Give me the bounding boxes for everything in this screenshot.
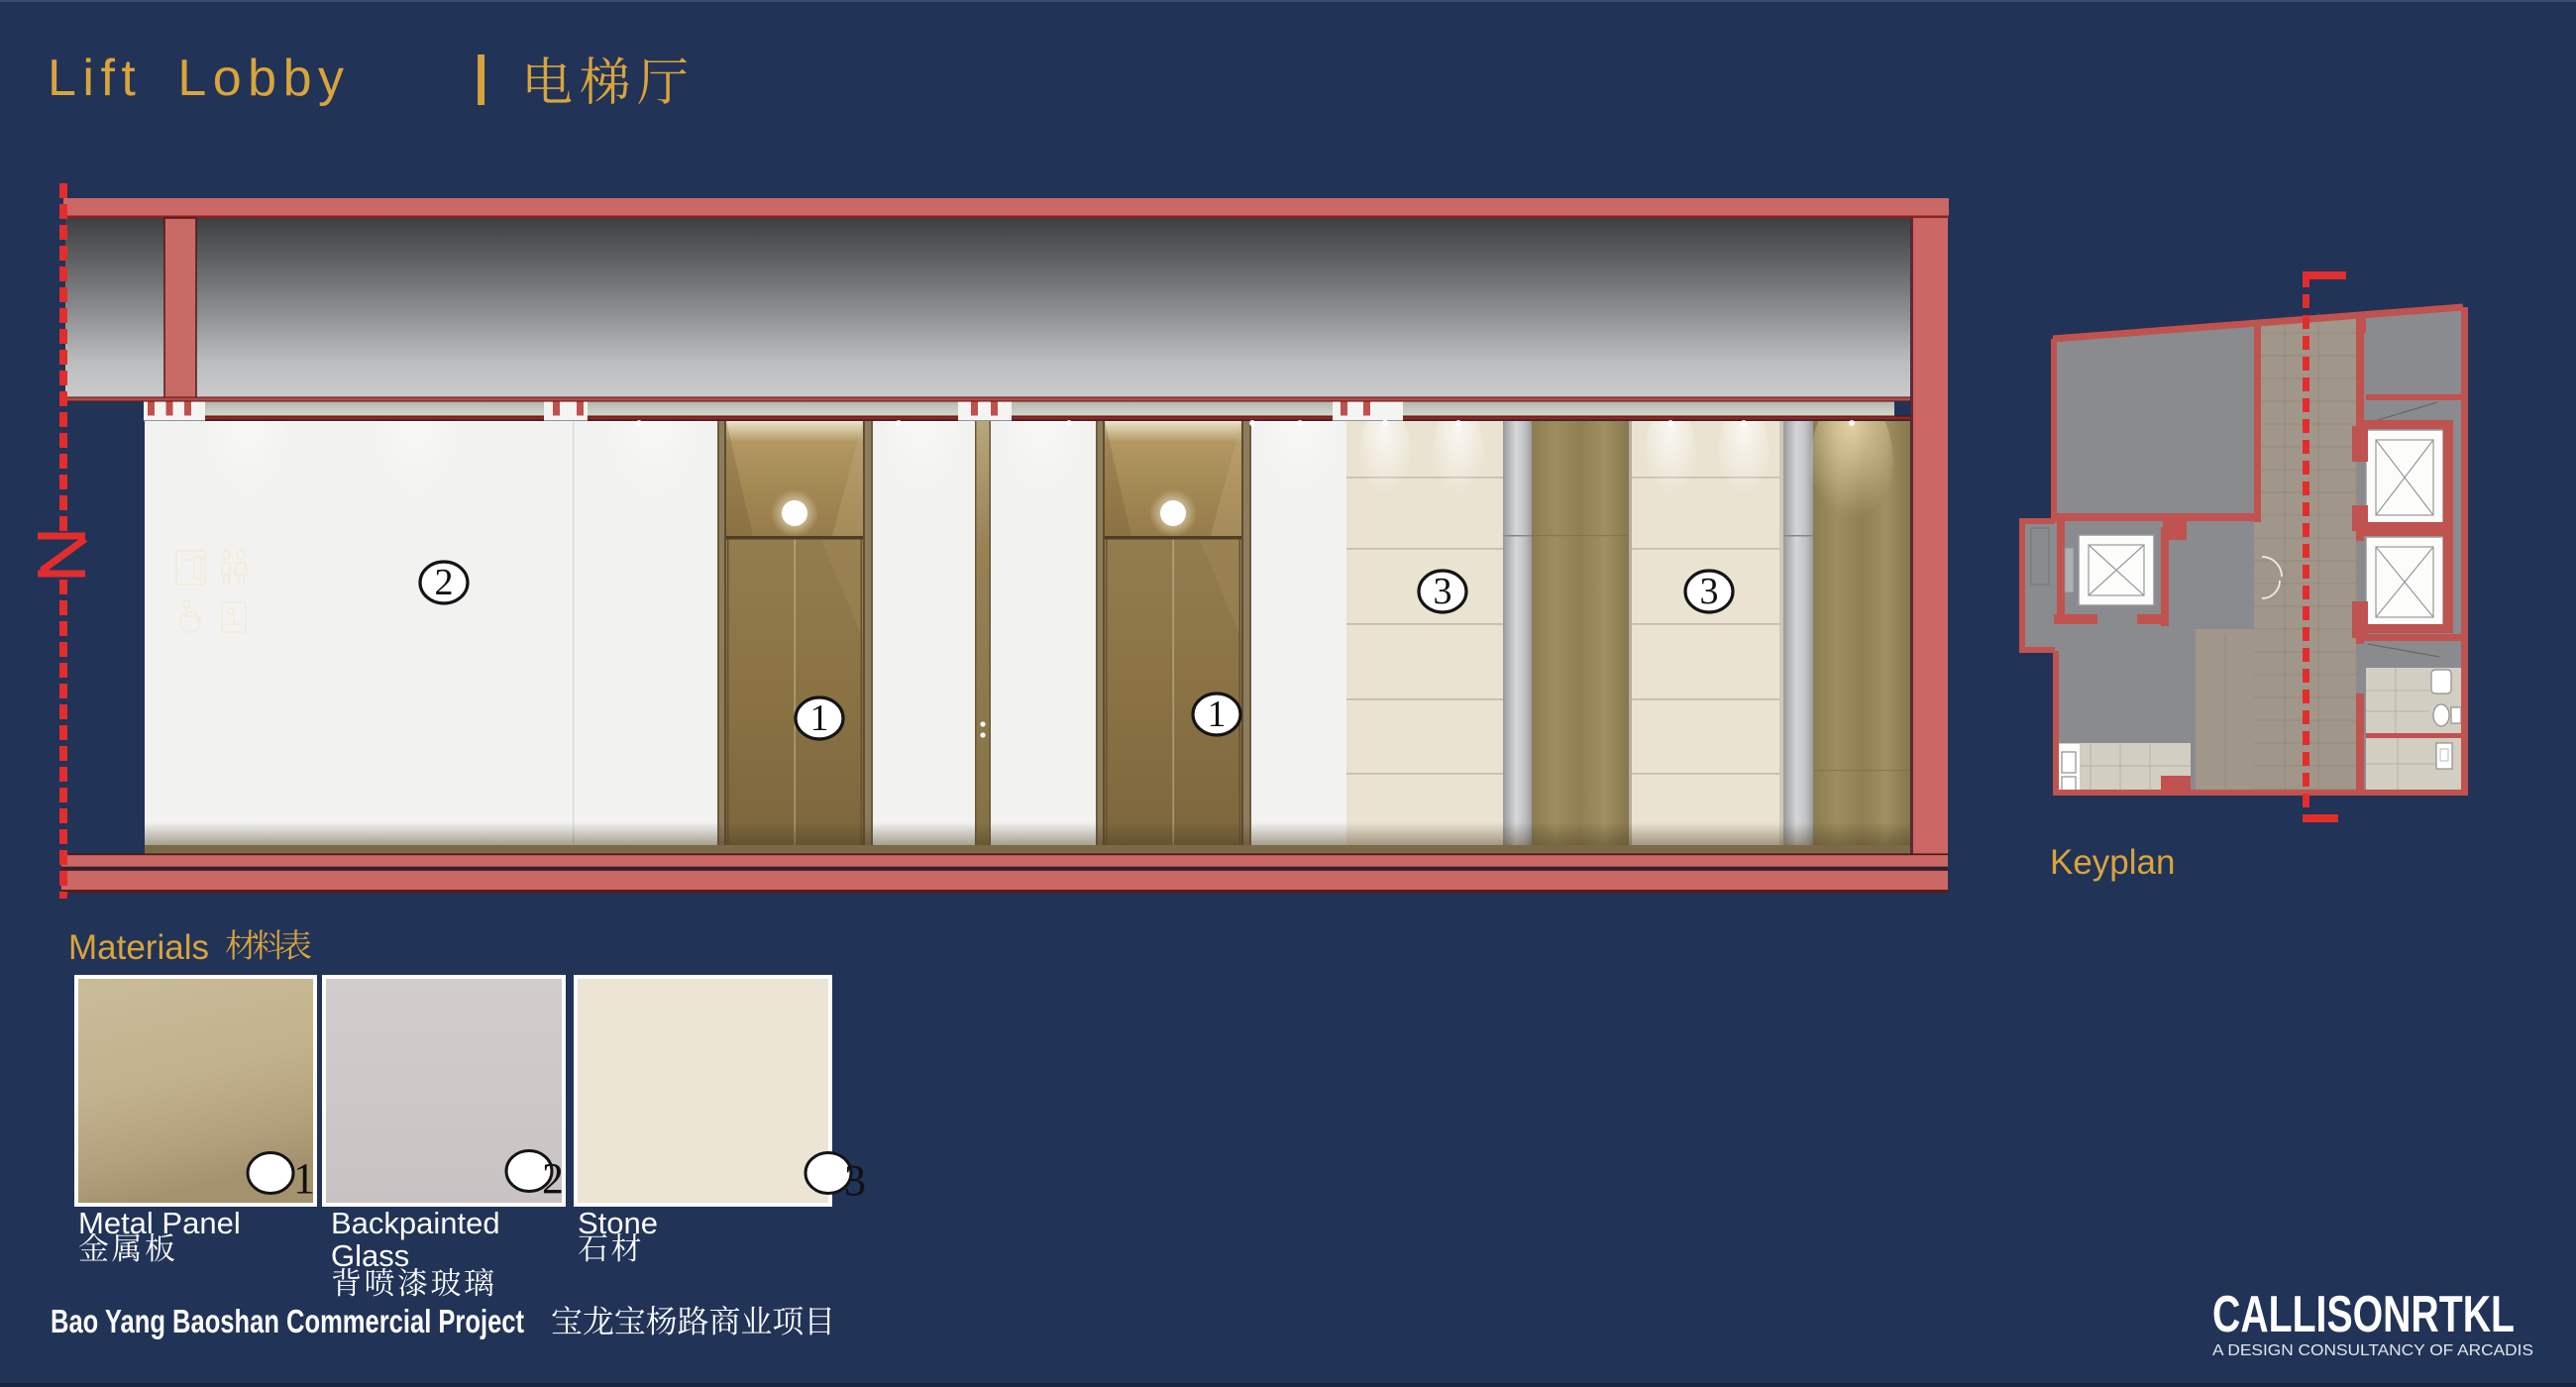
- svg-text:2: 2: [435, 562, 454, 603]
- svg-text:Bao Yang Baoshan Commercial Pr: Bao Yang Baoshan Commercial Project: [51, 1303, 524, 1339]
- svg-text:1: 1: [1208, 693, 1227, 735]
- svg-text:1: 1: [810, 697, 829, 739]
- svg-text:CALLISONRTKL: CALLISONRTKL: [2212, 1286, 2515, 1343]
- svg-text:2: 2: [542, 1154, 564, 1203]
- svg-text:1: 1: [293, 1154, 315, 1203]
- svg-text:3: 3: [1700, 571, 1719, 612]
- svg-text:3: 3: [1434, 571, 1452, 612]
- svg-text:A DESIGN CONSULTANCY OF ARCADI: A DESIGN CONSULTANCY OF ARCADIS: [2212, 1342, 2533, 1359]
- svg-text:3: 3: [844, 1156, 866, 1205]
